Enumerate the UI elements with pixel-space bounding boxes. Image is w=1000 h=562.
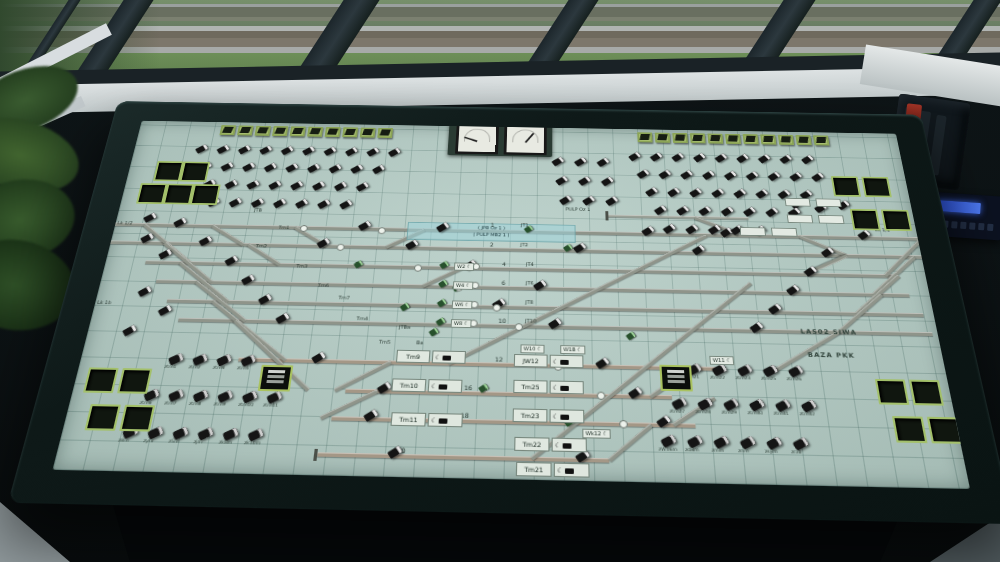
panel-button[interactable] bbox=[366, 147, 379, 157]
panel-button[interactable] bbox=[711, 188, 724, 198]
panel-button[interactable] bbox=[645, 187, 658, 197]
panel-label: PULP Oz 1 bbox=[566, 207, 591, 212]
radio-key[interactable] bbox=[969, 222, 975, 229]
auxiliary-button-label: zym bbox=[143, 439, 154, 444]
auxiliary-button-label: ztm31 bbox=[773, 412, 789, 417]
radio-key[interactable] bbox=[960, 222, 966, 229]
panel-label: 16 bbox=[464, 385, 472, 391]
panel-label: Tm5 bbox=[379, 340, 391, 345]
panel-button[interactable] bbox=[650, 152, 663, 162]
block-key-green[interactable] bbox=[690, 133, 706, 143]
panel-button[interactable] bbox=[801, 155, 814, 165]
release-counter bbox=[659, 365, 693, 392]
panel-button[interactable] bbox=[290, 180, 303, 190]
switch-position-box[interactable]: W11 ☾ bbox=[709, 356, 734, 365]
shunt-signal-label: Tm23 bbox=[513, 408, 548, 422]
track-indicator-lamp bbox=[597, 392, 606, 400]
panel-label: JTBa bbox=[399, 325, 411, 330]
panel-button[interactable] bbox=[601, 176, 614, 186]
auxiliary-button-label: ztm1 bbox=[164, 365, 177, 370]
auxiliary-button-label: ztm4 bbox=[212, 366, 225, 371]
track-bumper bbox=[605, 211, 608, 220]
panel-button[interactable] bbox=[242, 162, 255, 172]
panel-button[interactable] bbox=[743, 207, 756, 217]
switch-position-box[interactable]: W10 ☾ bbox=[520, 344, 545, 353]
panel-button[interactable] bbox=[372, 164, 385, 174]
panel-button[interactable] bbox=[229, 197, 242, 207]
panel-button[interactable] bbox=[758, 154, 771, 164]
panel-button[interactable] bbox=[317, 199, 330, 209]
panel-button[interactable] bbox=[676, 205, 689, 215]
panel-label: 6 bbox=[501, 280, 505, 286]
indicator-box bbox=[771, 228, 798, 237]
panel-label: JT10 bbox=[525, 319, 536, 324]
panel-button[interactable] bbox=[238, 145, 251, 155]
block-key-green[interactable] bbox=[342, 127, 358, 137]
track-line bbox=[607, 215, 748, 220]
panel-button[interactable] bbox=[281, 146, 294, 156]
panel-button[interactable] bbox=[295, 198, 308, 208]
auxiliary-button-label: ztm29 bbox=[721, 411, 737, 416]
signal-button[interactable] bbox=[158, 305, 172, 317]
radio-key[interactable] bbox=[987, 224, 993, 231]
indicator-window-green bbox=[179, 162, 210, 182]
block-key-green[interactable] bbox=[743, 134, 759, 144]
block-key-green[interactable] bbox=[272, 126, 288, 136]
panel-button[interactable] bbox=[736, 153, 749, 163]
panel-button[interactable] bbox=[339, 199, 352, 209]
auxiliary-button-label: zk10m bbox=[244, 441, 261, 446]
route-button-green[interactable] bbox=[429, 328, 439, 337]
block-key-green[interactable] bbox=[219, 125, 236, 135]
panel-button[interactable] bbox=[578, 176, 591, 186]
panel-button[interactable] bbox=[811, 172, 824, 182]
panel-label: 12 bbox=[495, 357, 503, 363]
panel-button[interactable] bbox=[259, 145, 272, 155]
block-key-green[interactable] bbox=[360, 128, 376, 138]
shunt-signal-label: JW12 bbox=[514, 354, 548, 367]
shunt-signal-label: Tm21 bbox=[516, 462, 552, 477]
indicator-box bbox=[815, 198, 841, 207]
block-key-green[interactable] bbox=[325, 127, 341, 137]
auxiliary-button-label: zW16m bbox=[658, 447, 677, 452]
panel-button[interactable] bbox=[195, 144, 208, 154]
panel-button[interactable] bbox=[225, 179, 238, 189]
indicator-box bbox=[787, 214, 814, 223]
panel-label: Tm1 bbox=[278, 225, 289, 229]
shunt-signal-button[interactable]: ☾ bbox=[427, 413, 462, 427]
auxiliary-button-label: ztm26 bbox=[786, 377, 802, 382]
indicator-window-green bbox=[190, 184, 221, 205]
track-indicator-lamp bbox=[414, 264, 423, 271]
panel-label: LAS02 SIWA bbox=[800, 329, 857, 336]
track-line bbox=[145, 260, 896, 278]
track-line bbox=[317, 452, 609, 462]
ammeter-gauge bbox=[504, 122, 547, 155]
block-key-green[interactable] bbox=[254, 126, 270, 136]
indicator-window-green bbox=[831, 176, 861, 197]
switch-position-box[interactable]: Wk12 ☾ bbox=[582, 429, 611, 439]
block-key-green[interactable] bbox=[655, 133, 670, 143]
indicator-window-green bbox=[875, 379, 910, 405]
panel-button[interactable] bbox=[779, 154, 792, 164]
radio-key[interactable] bbox=[978, 223, 984, 230]
panel-button[interactable] bbox=[605, 196, 618, 206]
panel-button[interactable] bbox=[264, 162, 277, 172]
auxiliary-button-label: zdBm bbox=[685, 448, 699, 453]
panel-label: 4 bbox=[502, 262, 506, 267]
panel-button[interactable] bbox=[654, 205, 667, 215]
panel-button[interactable] bbox=[574, 157, 587, 167]
auxiliary-button-label: zjm bbox=[193, 440, 203, 445]
signal-button[interactable] bbox=[158, 249, 172, 260]
block-key-green[interactable] bbox=[377, 128, 393, 138]
auxiliary-button-label: ztm9 bbox=[213, 402, 226, 407]
panel-label: BAZA PKK bbox=[807, 352, 855, 359]
auxiliary-button-label: znm bbox=[738, 449, 749, 454]
panel-button[interactable] bbox=[721, 206, 734, 216]
block-key-green[interactable] bbox=[237, 125, 254, 135]
switch-position-box[interactable]: W4 ☾ bbox=[453, 281, 474, 290]
auxiliary-button-label: ztm23 bbox=[735, 376, 751, 381]
panel-button[interactable] bbox=[667, 187, 680, 197]
route-label: ( PULP MB2 1 ) bbox=[473, 232, 509, 238]
auxiliary-button-label: ztm30 bbox=[747, 411, 763, 416]
indicator-window-green bbox=[909, 380, 944, 406]
panel-button[interactable] bbox=[724, 171, 737, 181]
track-indicator-lamp bbox=[515, 323, 523, 331]
panel-button[interactable] bbox=[302, 146, 315, 156]
switch-position-box[interactable]: W2 ☾ bbox=[454, 263, 475, 271]
indicator-window-green bbox=[881, 209, 913, 231]
shunt-signal-button[interactable]: ☾ bbox=[550, 355, 584, 368]
panel-button[interactable] bbox=[559, 195, 572, 205]
block-key-green[interactable] bbox=[637, 132, 652, 142]
panel-button[interactable] bbox=[334, 181, 347, 191]
shunt-signal-label: Tm22 bbox=[514, 437, 549, 452]
block-key-green[interactable] bbox=[307, 127, 323, 137]
shunt-signal-button[interactable]: ☾ bbox=[550, 381, 584, 395]
panel-label: Ba bbox=[416, 340, 423, 345]
auxiliary-button-label: ztm27 bbox=[669, 409, 685, 414]
panel-button[interactable] bbox=[698, 206, 711, 216]
panel-button[interactable] bbox=[637, 169, 650, 179]
indicator-window-green bbox=[892, 416, 928, 443]
panel-label: Tm7 bbox=[338, 296, 350, 301]
panel-button[interactable] bbox=[746, 171, 759, 181]
route-button-green[interactable] bbox=[626, 331, 636, 340]
panel-button[interactable] bbox=[285, 163, 298, 173]
panel-label: 2 bbox=[490, 242, 494, 247]
panel-button[interactable] bbox=[312, 181, 325, 191]
signal-button[interactable] bbox=[138, 286, 152, 297]
panel-button[interactable] bbox=[689, 188, 702, 198]
indicator-window-green bbox=[119, 405, 155, 432]
panel-button[interactable] bbox=[767, 171, 780, 181]
panel-button[interactable] bbox=[582, 195, 595, 205]
switch-position-box[interactable]: W6 ☾ bbox=[452, 300, 473, 309]
block-key-green[interactable] bbox=[795, 135, 811, 145]
shunt-signal-button[interactable]: ☾ bbox=[554, 463, 590, 478]
panel-button[interactable] bbox=[329, 164, 342, 174]
signal-button[interactable] bbox=[143, 212, 157, 222]
panel-button[interactable] bbox=[345, 147, 358, 157]
track-indicator-lamp bbox=[378, 227, 387, 234]
track-diagram-panel: ( JPB Oz 1 )( PULP MB2 1 )12468101216182… bbox=[53, 121, 971, 489]
track-diagonal bbox=[608, 423, 654, 462]
auxiliary-button-label: zsym bbox=[764, 450, 778, 455]
radio-key[interactable] bbox=[951, 221, 957, 228]
switch-position-box[interactable]: W8 ☾ bbox=[451, 319, 472, 328]
panel-button[interactable] bbox=[221, 162, 234, 172]
panel-button[interactable] bbox=[671, 152, 684, 162]
indicator-window-green bbox=[83, 367, 119, 393]
indicator-box bbox=[784, 198, 810, 207]
panel-button[interactable] bbox=[789, 172, 802, 182]
block-key-green[interactable] bbox=[707, 133, 723, 143]
panel-button[interactable] bbox=[324, 146, 337, 156]
shunt-signal-label: Tm11 bbox=[391, 412, 427, 426]
block-key-green[interactable] bbox=[725, 134, 741, 144]
auxiliary-button-label: ztm7 bbox=[164, 401, 177, 406]
auxiliary-button-label: ztm22 bbox=[710, 376, 726, 381]
indicator-window-green bbox=[84, 404, 120, 431]
indicator-window-green bbox=[850, 209, 881, 231]
panel-label: Tm4 bbox=[356, 316, 368, 321]
panel-button[interactable] bbox=[628, 152, 641, 162]
block-key-green[interactable] bbox=[290, 126, 306, 136]
block-key-green[interactable] bbox=[813, 135, 829, 145]
track-indicator-lamp bbox=[299, 225, 308, 232]
switch-position-box[interactable]: W1B ☾ bbox=[560, 345, 585, 354]
auxiliary-button-label: ztm5 bbox=[237, 366, 250, 371]
shunt-signal-label: Tm25 bbox=[513, 380, 547, 394]
panel-label: JT2 bbox=[520, 243, 528, 247]
auxiliary-button-label: z8m bbox=[118, 438, 130, 443]
shunt-signal-button[interactable]: ☾ bbox=[432, 350, 466, 363]
shunt-signal-button[interactable]: ☾ bbox=[428, 379, 463, 393]
panel-label: JT4 bbox=[526, 262, 534, 267]
panel-button[interactable] bbox=[715, 153, 728, 163]
auxiliary-button-label: ztm2 bbox=[188, 365, 201, 370]
indicator-window-green bbox=[861, 177, 892, 198]
panel-button[interactable] bbox=[733, 188, 746, 198]
indicator-box bbox=[818, 215, 845, 224]
panel-button[interactable] bbox=[273, 198, 286, 208]
auxiliary-button-label: zmm bbox=[711, 448, 724, 453]
indicator-box bbox=[740, 227, 766, 236]
shunt-signal-label: Tm9 bbox=[396, 350, 431, 363]
panel-button[interactable] bbox=[702, 170, 715, 180]
panel-label: Tm2 bbox=[255, 244, 267, 249]
auxiliary-button-label: zrzb bbox=[791, 450, 802, 455]
track-indicator-lamp bbox=[493, 304, 501, 312]
panel-label: Lk 1b bbox=[97, 300, 112, 305]
auxiliary-button-label: ztm32 bbox=[799, 412, 815, 417]
panel-label: 10 bbox=[498, 318, 506, 324]
auxiliary-button-label: ztm28 bbox=[695, 410, 711, 415]
panel-label: Tm6 bbox=[317, 283, 329, 288]
track-indicator-lamp bbox=[336, 244, 345, 251]
panel-label: Lk 1/2 bbox=[117, 221, 133, 225]
panel-label: JTB bbox=[254, 208, 262, 212]
auxiliary-button-label: ztm10 bbox=[238, 403, 254, 408]
auxiliary-button-label: ztm11 bbox=[263, 403, 279, 408]
auxiliary-button-label: ztm8 bbox=[188, 402, 201, 407]
panel-button[interactable] bbox=[246, 180, 259, 190]
shunt-signal-button[interactable]: ☾ bbox=[550, 409, 585, 423]
panel-button[interactable] bbox=[658, 169, 671, 179]
panel-button[interactable] bbox=[307, 163, 320, 173]
panel-button[interactable] bbox=[217, 144, 230, 154]
voltmeter-gauge bbox=[455, 122, 499, 155]
panel-button[interactable] bbox=[268, 180, 281, 190]
auxiliary-button-label: ztm25 bbox=[761, 377, 777, 382]
panel-button[interactable] bbox=[551, 156, 564, 166]
panel-label: JT8 bbox=[525, 300, 533, 305]
panel-button[interactable] bbox=[680, 170, 693, 180]
panel-button[interactable] bbox=[356, 182, 369, 192]
panel-button[interactable] bbox=[765, 207, 778, 217]
shunt-signal-button[interactable]: ☾ bbox=[552, 438, 587, 453]
block-key-green[interactable] bbox=[778, 135, 794, 145]
auxiliary-button-label: zk8m bbox=[218, 440, 232, 445]
block-key-green[interactable] bbox=[760, 134, 776, 144]
panel-button[interactable] bbox=[555, 176, 568, 186]
auxiliary-button-label: z5m bbox=[168, 439, 179, 444]
signal-desk: ( JPB Oz 1 )( PULP MB2 1 )12468101216182… bbox=[53, 121, 971, 489]
panel-button[interactable] bbox=[350, 164, 363, 174]
shunt-signal-label: Tm10 bbox=[391, 378, 426, 392]
panel-button[interactable] bbox=[596, 157, 609, 167]
block-key-green[interactable] bbox=[672, 133, 688, 143]
signal-button[interactable] bbox=[122, 325, 137, 337]
panel-label: Tm3 bbox=[296, 264, 308, 269]
release-counter bbox=[258, 365, 294, 392]
panel-button[interactable] bbox=[693, 153, 706, 163]
panel-button[interactable] bbox=[388, 147, 401, 157]
track-indicator-lamp bbox=[619, 420, 628, 429]
panel-button[interactable] bbox=[755, 189, 768, 199]
indicator-window-green bbox=[117, 368, 152, 394]
panel-label: 1 bbox=[491, 223, 495, 228]
